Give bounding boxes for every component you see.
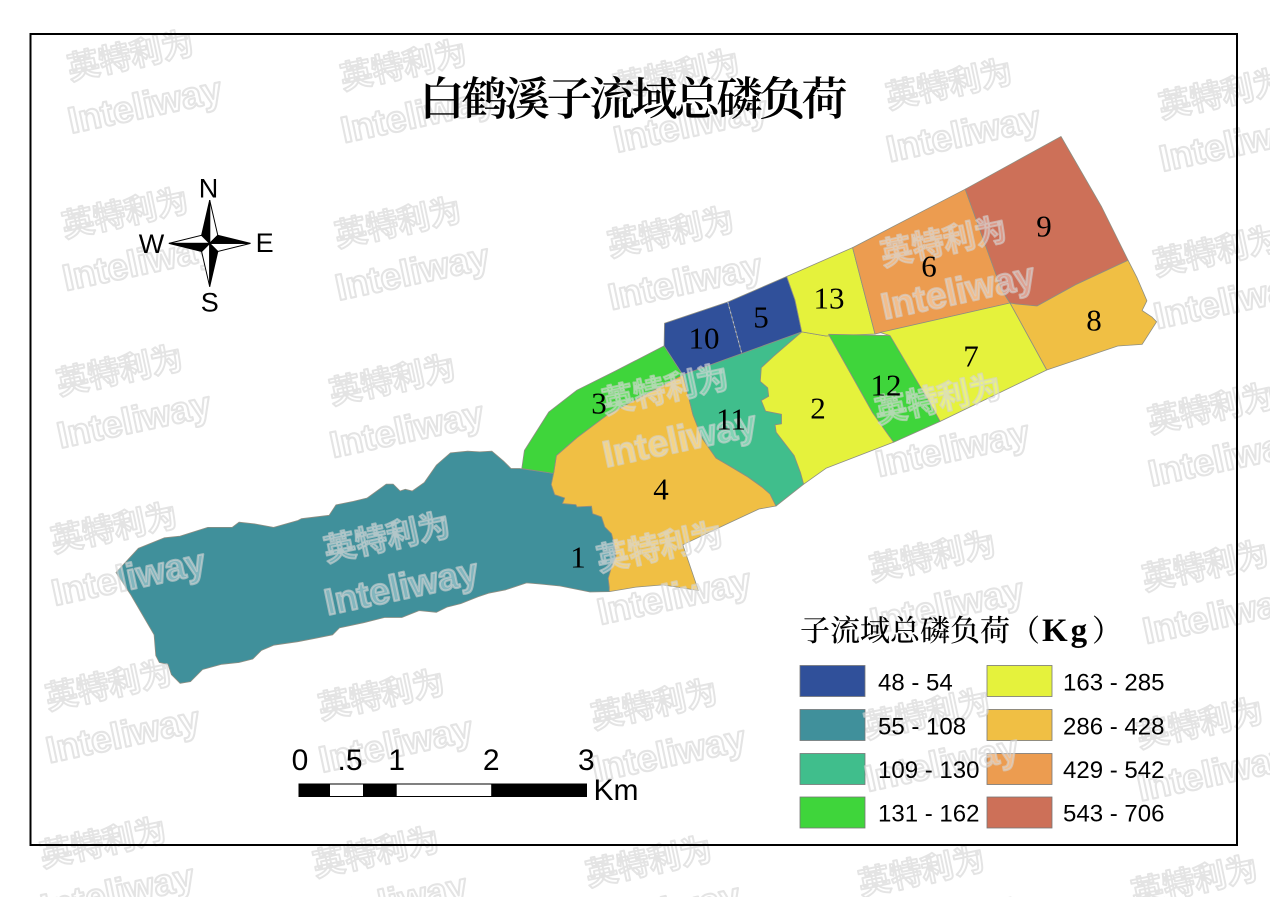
svg-text:7: 7 [963,339,979,374]
svg-text:9: 9 [1036,209,1052,244]
svg-text:13: 13 [814,281,845,316]
svg-text:543 - 706: 543 - 706 [1063,801,1164,828]
svg-text:2: 2 [810,391,826,426]
svg-text:Km: Km [594,774,639,807]
svg-text:.5: .5 [337,744,362,777]
svg-text:131 - 162: 131 - 162 [878,801,979,828]
svg-text:4: 4 [653,472,669,507]
svg-text:48 - 54: 48 - 54 [878,670,953,697]
svg-text:286 - 428: 286 - 428 [1063,714,1164,741]
svg-text:429 - 542: 429 - 542 [1063,757,1164,784]
svg-text:163 - 285: 163 - 285 [1063,670,1164,697]
svg-text:2: 2 [483,744,500,777]
svg-text:10: 10 [689,321,720,356]
svg-text:0: 0 [292,744,309,777]
svg-text:E: E [256,228,274,258]
svg-text:109 - 130: 109 - 130 [878,757,979,784]
svg-text:3: 3 [578,744,595,777]
svg-text:8: 8 [1086,303,1102,338]
svg-text:5: 5 [753,300,769,335]
svg-text:3: 3 [591,386,607,421]
svg-text:6: 6 [921,249,937,284]
svg-text:55 - 108: 55 - 108 [878,714,966,741]
svg-text:W: W [139,229,165,259]
svg-text:11: 11 [716,402,746,437]
svg-text:N: N [199,174,219,204]
svg-text:1: 1 [388,744,405,777]
svg-text:1: 1 [570,540,586,575]
svg-text:S: S [201,288,219,318]
svg-text:12: 12 [871,368,902,403]
svg-text:Kg: Kg [1042,613,1090,649]
